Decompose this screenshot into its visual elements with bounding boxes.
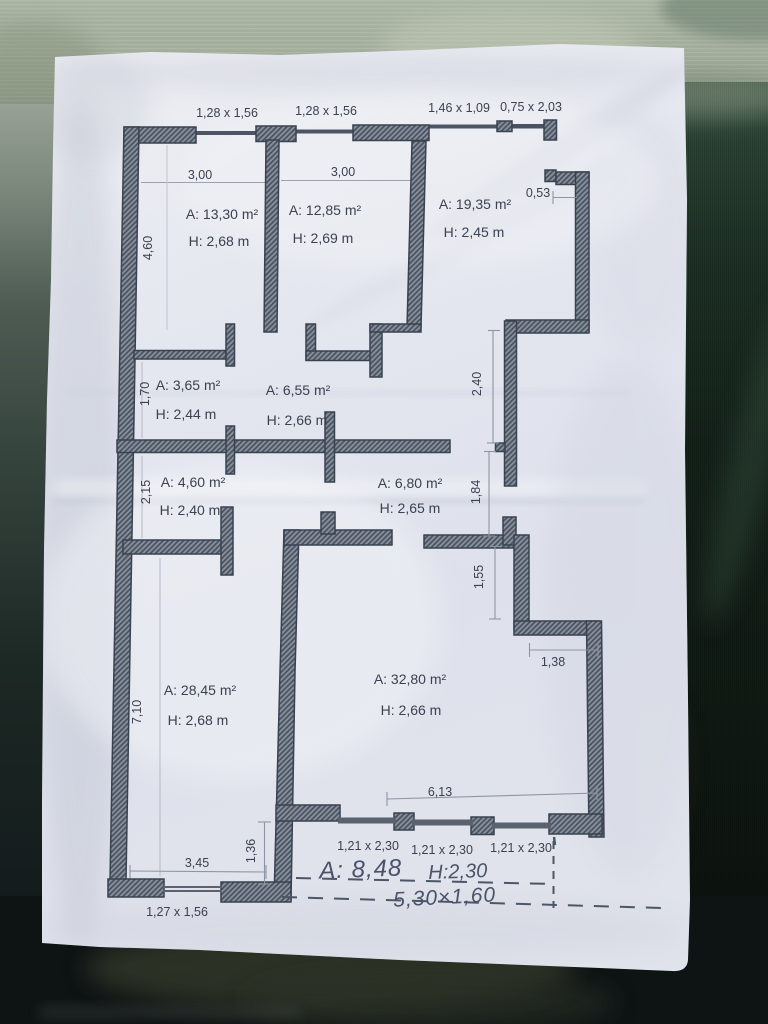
- svg-text:A: 8,48: A: 8,48: [317, 855, 403, 885]
- svg-text:A: 19,35 m²: A: 19,35 m²: [439, 196, 512, 212]
- svg-text:1,21 x 2,30: 1,21 x 2,30: [411, 843, 473, 857]
- svg-text:3,00: 3,00: [331, 165, 355, 179]
- svg-text:1,21 x 2,30: 1,21 x 2,30: [490, 841, 552, 855]
- svg-text:A: 32,80 m²: A: 32,80 m²: [374, 671, 447, 687]
- svg-text:A: 3,65 m²: A: 3,65 m²: [156, 377, 221, 393]
- svg-text:1,28 x 1,56: 1,28 x 1,56: [196, 106, 258, 120]
- svg-text:H: 2,45 m: H: 2,45 m: [444, 224, 505, 240]
- svg-text:H: 2,66 m: H: 2,66 m: [381, 702, 442, 718]
- svg-text:3,45: 3,45: [185, 856, 209, 870]
- svg-text:7,10: 7,10: [130, 700, 144, 724]
- svg-text:0,53: 0,53: [526, 186, 550, 200]
- svg-text:A: 6,80 m²: A: 6,80 m²: [378, 475, 443, 491]
- svg-text:1,27 x 1,56: 1,27 x 1,56: [146, 905, 208, 919]
- svg-text:A: 28,45 m²: A: 28,45 m²: [164, 682, 237, 698]
- svg-text:1,21 x 2,30: 1,21 x 2,30: [337, 839, 399, 853]
- svg-text:6,13: 6,13: [428, 785, 452, 799]
- svg-text:4,60: 4,60: [141, 236, 155, 260]
- svg-text:H: 2,68 m: H: 2,68 m: [189, 233, 250, 249]
- svg-text:A: 13,30 m²: A: 13,30 m²: [186, 206, 259, 222]
- svg-text:2,15: 2,15: [139, 480, 153, 504]
- svg-text:H: 2,66 m: H: 2,66 m: [267, 412, 328, 428]
- svg-text:A: 12,85 m²: A: 12,85 m²: [289, 202, 362, 218]
- svg-text:H:2,30: H:2,30: [428, 860, 488, 884]
- svg-text:H: 2,44 m: H: 2,44 m: [156, 406, 217, 422]
- svg-text:1,84: 1,84: [469, 480, 483, 504]
- svg-text:1,55: 1,55: [472, 565, 486, 589]
- svg-text:1,38: 1,38: [541, 655, 565, 669]
- svg-text:1,70: 1,70: [138, 382, 152, 406]
- svg-text:0,75 x 2,03: 0,75 x 2,03: [500, 100, 562, 114]
- svg-text:A: 4,60 m²: A: 4,60 m²: [161, 474, 226, 490]
- svg-text:2,40: 2,40: [470, 372, 484, 396]
- svg-text:A: 6,55 m²: A: 6,55 m²: [266, 382, 331, 398]
- svg-text:H: 2,68 m: H: 2,68 m: [168, 712, 229, 728]
- svg-text:1,46 x 1,09: 1,46 x 1,09: [428, 101, 490, 115]
- svg-text:H: 2,69 m: H: 2,69 m: [293, 230, 354, 246]
- svg-text:H: 2,65 m: H: 2,65 m: [380, 500, 441, 516]
- svg-text:1,36: 1,36: [244, 839, 258, 863]
- svg-text:H: 2,40 m: H: 2,40 m: [160, 502, 221, 518]
- svg-text:3,00: 3,00: [188, 168, 212, 182]
- svg-text:1,28 x 1,56: 1,28 x 1,56: [295, 104, 357, 118]
